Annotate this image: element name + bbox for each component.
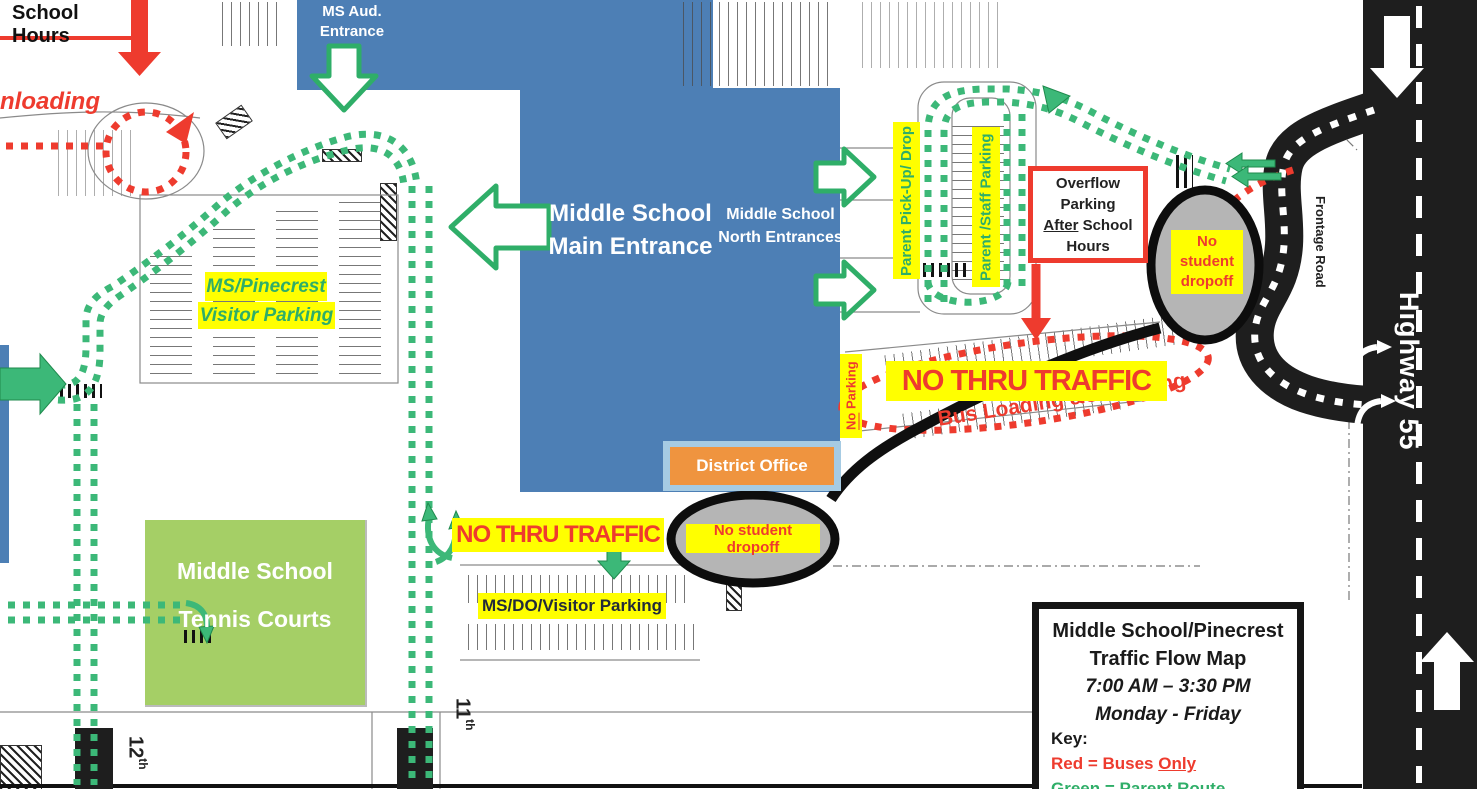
parent-route-dots <box>58 134 417 385</box>
parent-pickup-label: Parent Pick-Up/ Drop <box>893 122 920 279</box>
street-lines <box>0 712 1035 789</box>
ms-aud-entrance-label: MS Aud. Entrance <box>308 0 396 44</box>
no-thru-traffic-upper-label: NO THRU TRAFFIC <box>886 361 1167 401</box>
turnaround-arrow-head <box>422 503 437 521</box>
parent-loop-dots <box>1007 114 1022 290</box>
legend-title-line2: Traffic Flow Map <box>1039 645 1297 673</box>
street-12th-label: 12th <box>118 736 150 789</box>
legend-green-key: Green = Parent Route <box>1039 779 1297 789</box>
street-11th-label: 11th <box>445 698 477 756</box>
no-student-dropoff-upper-label: No student dropoff <box>1171 230 1243 294</box>
north-entrance-arrow-top <box>816 149 874 205</box>
district-office-label: District Office <box>670 447 834 485</box>
main-entrance-arrow <box>451 186 549 268</box>
parent-route-11th <box>412 186 429 785</box>
school-hours-box: School Hours <box>0 0 136 40</box>
no-thru-traffic-lower-label: NO THRU TRAFFIC <box>452 518 664 552</box>
legend-days: Monday - Friday <box>1039 701 1297 729</box>
frontage-road-label: Frontage Road <box>1304 196 1328 306</box>
legend-key-label: Key: <box>1039 729 1297 754</box>
ms-aud-entrance-arrow <box>312 46 376 110</box>
no-student-dropoff-lower-label: No student dropoff <box>686 524 820 553</box>
visitor-parking-label-line1: MS/Pinecrest <box>205 272 327 301</box>
tennis-courts-label: Middle School Tennis Courts <box>145 530 365 660</box>
visitor-parking-label-line2: Visitor Parking <box>198 302 335 329</box>
msdo-visitor-parking-label: MS/DO/Visitor Parking <box>478 593 666 619</box>
parent-staff-parking-label: Parent /Staff Parking <box>972 127 1000 287</box>
north-entrances-label: Middle School North Entrances <box>718 198 843 253</box>
unloading-label: nloading <box>0 88 100 116</box>
highway-55-label: Highway 55 <box>1388 292 1424 497</box>
district-office-box: District Office <box>663 441 841 491</box>
overflow-parking-box: Overflow Parking After School Hours <box>1028 166 1148 263</box>
legend-title-line1: Middle School/Pinecrest <box>1039 617 1297 645</box>
legend-hours: 7:00 AM – 3:30 PM <box>1039 673 1297 701</box>
bus-loop-dots <box>106 112 186 192</box>
north-entrance-arrow-bottom <box>816 262 874 318</box>
main-entrance-label: Middle School Main Entrance <box>548 192 713 267</box>
school-hours-label: School Hours <box>12 2 132 48</box>
overflow-arrow-head <box>1021 318 1051 340</box>
traffic-flow-map: School Hours nloading MS Aud. Entrance M… <box>0 0 1477 789</box>
no-parking-label: No Parking <box>840 354 862 438</box>
legend-box: Middle School/Pinecrest Traffic Flow Map… <box>1032 602 1304 789</box>
parent-route-12th <box>77 404 94 785</box>
legend-red-key: Red = Buses Only <box>1039 754 1297 779</box>
west-entry-arrow <box>0 354 66 414</box>
